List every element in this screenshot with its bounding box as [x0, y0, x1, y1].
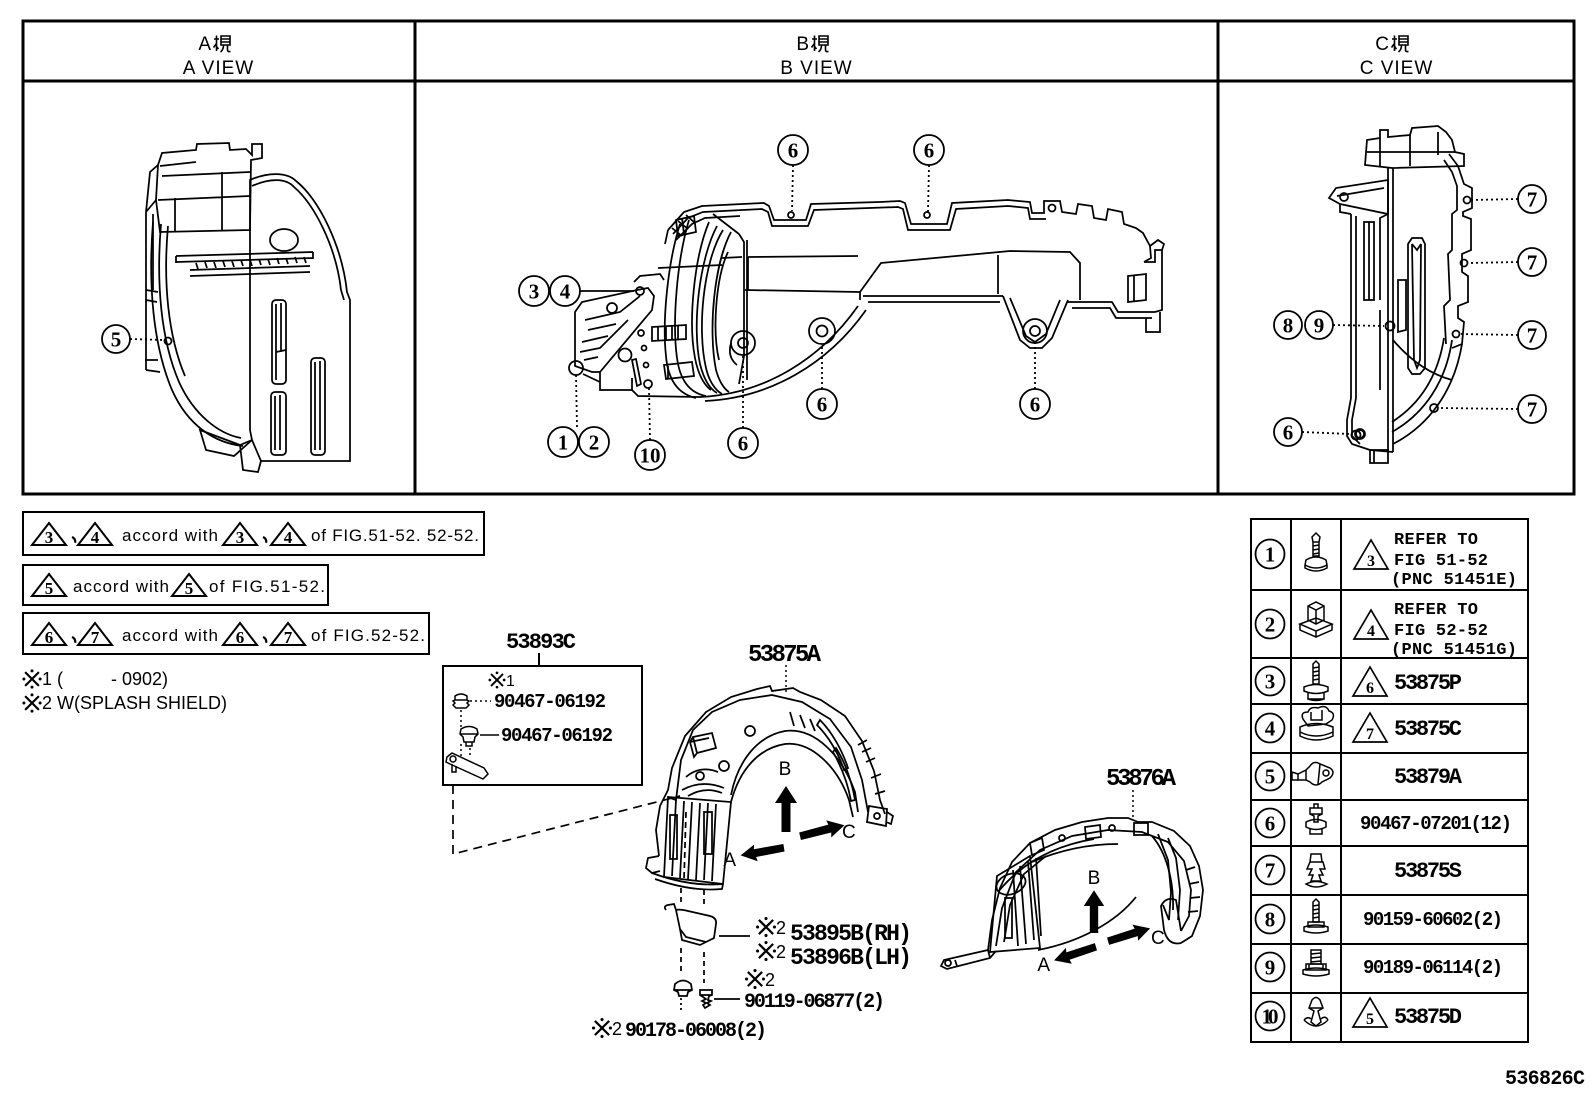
- svg-text:3: 3: [236, 528, 245, 547]
- svg-text:53893C: 53893C: [506, 630, 576, 655]
- svg-text:3: 3: [1265, 670, 1276, 694]
- svg-text:6: 6: [738, 432, 749, 456]
- svg-text:4: 4: [560, 280, 571, 304]
- svg-text:53875A: 53875A: [748, 642, 822, 669]
- svg-text:53875C: 53875C: [1394, 717, 1462, 742]
- svg-text:90159-60602(2): 90159-60602(2): [1363, 909, 1503, 931]
- svg-text:6: 6: [1265, 812, 1276, 836]
- svg-text:10: 10: [640, 444, 661, 468]
- svg-text:6: 6: [924, 139, 935, 163]
- svg-text:8: 8: [1265, 908, 1276, 932]
- svg-text:9: 9: [1314, 314, 1325, 338]
- svg-text:4: 4: [284, 528, 293, 547]
- svg-text:(PNC 51451G): (PNC 51451G): [1391, 641, 1517, 660]
- svg-text:C: C: [1151, 928, 1165, 949]
- svg-text:7: 7: [284, 628, 293, 647]
- svg-text:A: A: [1037, 955, 1050, 976]
- svg-text:(PNC 51451E): (PNC 51451E): [1391, 571, 1517, 590]
- svg-text:REFER TO: REFER TO: [1394, 531, 1478, 550]
- svg-text:1: 1: [558, 431, 569, 455]
- svg-text:FIG 52-52: FIG 52-52: [1394, 622, 1488, 641]
- svg-text:2: 2: [612, 1019, 622, 1039]
- svg-text:3: 3: [45, 528, 54, 547]
- svg-text:5: 5: [1366, 1011, 1374, 1028]
- svg-text:7: 7: [1527, 188, 1538, 212]
- svg-text:6: 6: [788, 139, 799, 163]
- svg-text:REFER TO: REFER TO: [1394, 601, 1478, 620]
- svg-text:53875S: 53875S: [1394, 859, 1462, 884]
- svg-text:7: 7: [1527, 324, 1538, 348]
- svg-text:accord with: accord with: [122, 526, 218, 545]
- svg-text:1 (: 1 (: [42, 669, 63, 689]
- svg-text:7: 7: [1527, 398, 1538, 422]
- svg-text:of FIG.51-52. 52-52.: of FIG.51-52. 52-52.: [311, 526, 479, 545]
- svg-text:4: 4: [1367, 623, 1375, 640]
- svg-text:2 W(SPLASH SHIELD): 2 W(SPLASH SHIELD): [42, 693, 227, 713]
- svg-text:6: 6: [1366, 680, 1374, 697]
- svg-text:6: 6: [236, 628, 245, 647]
- svg-text:C VIEW: C VIEW: [1360, 58, 1434, 79]
- svg-text:7: 7: [1527, 251, 1538, 275]
- svg-text:2: 2: [1265, 613, 1276, 637]
- svg-text:6: 6: [45, 628, 54, 647]
- svg-text:2: 2: [776, 942, 786, 962]
- svg-text:7: 7: [1265, 859, 1276, 883]
- svg-text:3: 3: [529, 280, 540, 304]
- svg-text:5: 5: [45, 579, 54, 598]
- svg-text:C: C: [842, 822, 856, 843]
- svg-text:10: 10: [1262, 1005, 1279, 1029]
- svg-text:2: 2: [765, 970, 775, 990]
- svg-text:- 0902): - 0902): [111, 669, 168, 689]
- svg-text:53879A: 53879A: [1394, 765, 1463, 790]
- svg-text:90467-07201(12): 90467-07201(12): [1360, 813, 1512, 835]
- svg-text:90467-06192: 90467-06192: [494, 691, 606, 713]
- svg-text:A: A: [198, 34, 211, 55]
- svg-text:536826C: 536826C: [1505, 1068, 1585, 1091]
- svg-text:C: C: [1375, 34, 1389, 55]
- svg-text:5: 5: [185, 579, 194, 598]
- svg-text:53875D: 53875D: [1394, 1005, 1462, 1030]
- svg-text:6: 6: [1030, 393, 1041, 417]
- svg-text:90178-06008(2): 90178-06008(2): [625, 1020, 767, 1043]
- svg-text:2: 2: [589, 431, 600, 455]
- svg-text:4: 4: [91, 528, 100, 547]
- svg-text:1: 1: [506, 673, 515, 690]
- svg-text:6: 6: [817, 393, 828, 417]
- svg-text:FIG 51-52: FIG 51-52: [1394, 552, 1488, 571]
- svg-text:53896B(LH): 53896B(LH): [790, 945, 912, 971]
- svg-text:53876A: 53876A: [1106, 766, 1177, 793]
- svg-text:accord with: accord with: [73, 577, 169, 596]
- svg-text:B: B: [779, 759, 792, 780]
- svg-text:B VIEW: B VIEW: [780, 58, 853, 79]
- svg-text:B: B: [796, 34, 809, 55]
- svg-text:53895B(RH): 53895B(RH): [790, 921, 912, 947]
- svg-text:A VIEW: A VIEW: [183, 58, 254, 79]
- svg-text:90119-06877(2): 90119-06877(2): [744, 991, 885, 1014]
- svg-text:53875P: 53875P: [1394, 671, 1462, 696]
- svg-text:6: 6: [1283, 421, 1294, 445]
- svg-text:5: 5: [1265, 765, 1276, 789]
- svg-text:accord with: accord with: [122, 626, 218, 645]
- svg-text:2: 2: [776, 918, 786, 938]
- svg-text:5: 5: [111, 328, 122, 352]
- svg-text:7: 7: [91, 628, 100, 647]
- svg-text:90467-06192: 90467-06192: [501, 725, 613, 747]
- svg-text:A: A: [723, 850, 736, 871]
- svg-text:1: 1: [1265, 543, 1276, 567]
- svg-text:of FIG.51-52.: of FIG.51-52.: [209, 577, 325, 596]
- svg-text:8: 8: [1283, 314, 1294, 338]
- svg-text:9: 9: [1265, 956, 1276, 980]
- svg-text:7: 7: [1366, 726, 1374, 743]
- svg-text:B: B: [1088, 868, 1101, 889]
- svg-text:3: 3: [1367, 553, 1375, 570]
- svg-text:90189-06114(2): 90189-06114(2): [1363, 957, 1503, 979]
- svg-text:of FIG.52-52.: of FIG.52-52.: [311, 626, 425, 645]
- svg-text:4: 4: [1265, 717, 1276, 741]
